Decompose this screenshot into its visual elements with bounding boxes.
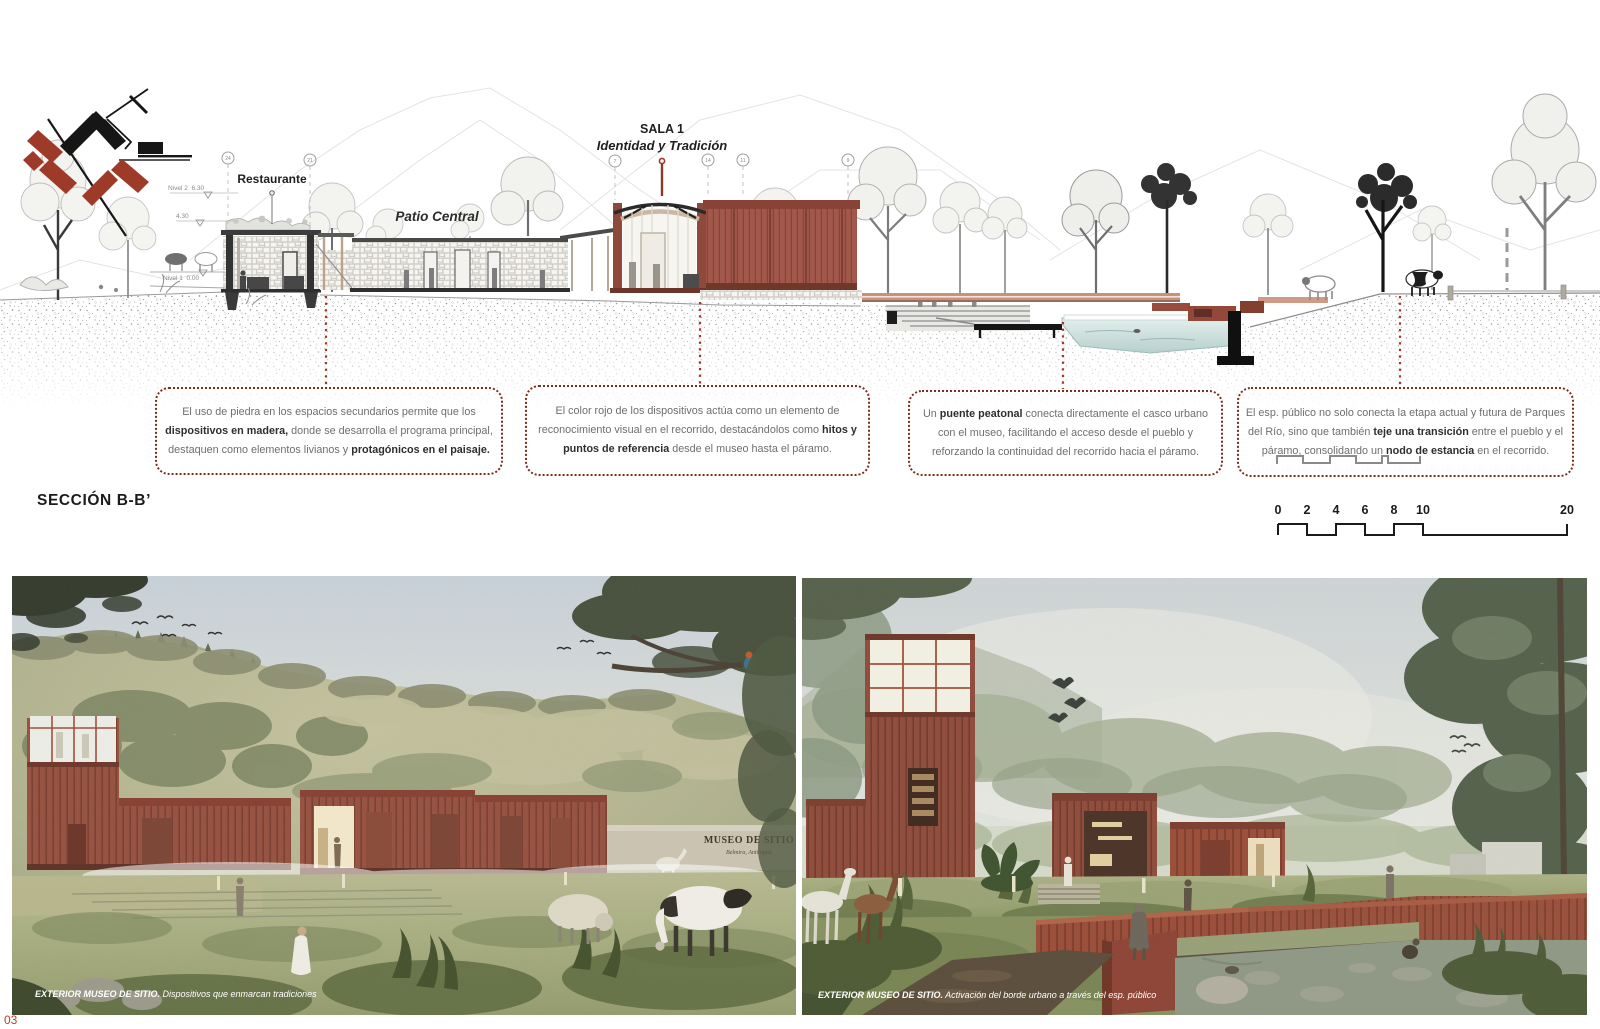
svg-text:14: 14 — [705, 158, 711, 164]
svg-text:4: 4 — [1333, 503, 1340, 517]
svg-text:20: 20 — [1560, 503, 1574, 517]
svg-text:8: 8 — [1391, 503, 1398, 517]
svg-text:Restaurante: Restaurante — [237, 172, 307, 186]
svg-text:21: 21 — [307, 158, 313, 164]
svg-text:Nivel 2 6.30: Nivel 2 6.30 — [168, 185, 205, 192]
svg-text:24: 24 — [225, 156, 231, 162]
svg-text:0: 0 — [1275, 503, 1282, 517]
svg-text:EXTERIOR MUSEO DE SITIO. Activ: EXTERIOR MUSEO DE SITIO. Activación del … — [818, 990, 1156, 1000]
svg-text:4.30: 4.30 — [176, 213, 189, 220]
svg-text:2: 2 — [1304, 503, 1311, 517]
svg-text:11: 11 — [740, 158, 745, 164]
svg-text:9: 9 — [847, 158, 850, 164]
svg-text:Patio Central: Patio Central — [395, 209, 479, 224]
svg-text:SALA 1: SALA 1 — [640, 122, 684, 136]
svg-text:7: 7 — [614, 159, 617, 165]
svg-text:EXTERIOR MUSEO DE SITIO. Dispo: EXTERIOR MUSEO DE SITIO. Dispositivos qu… — [35, 989, 317, 999]
svg-text:Identidad y Tradición: Identidad y Tradición — [597, 138, 728, 153]
svg-text:6: 6 — [1362, 503, 1369, 517]
svg-text:10: 10 — [1416, 503, 1430, 517]
svg-text:Nivel 1 0.00: Nivel 1 0.00 — [163, 275, 200, 282]
